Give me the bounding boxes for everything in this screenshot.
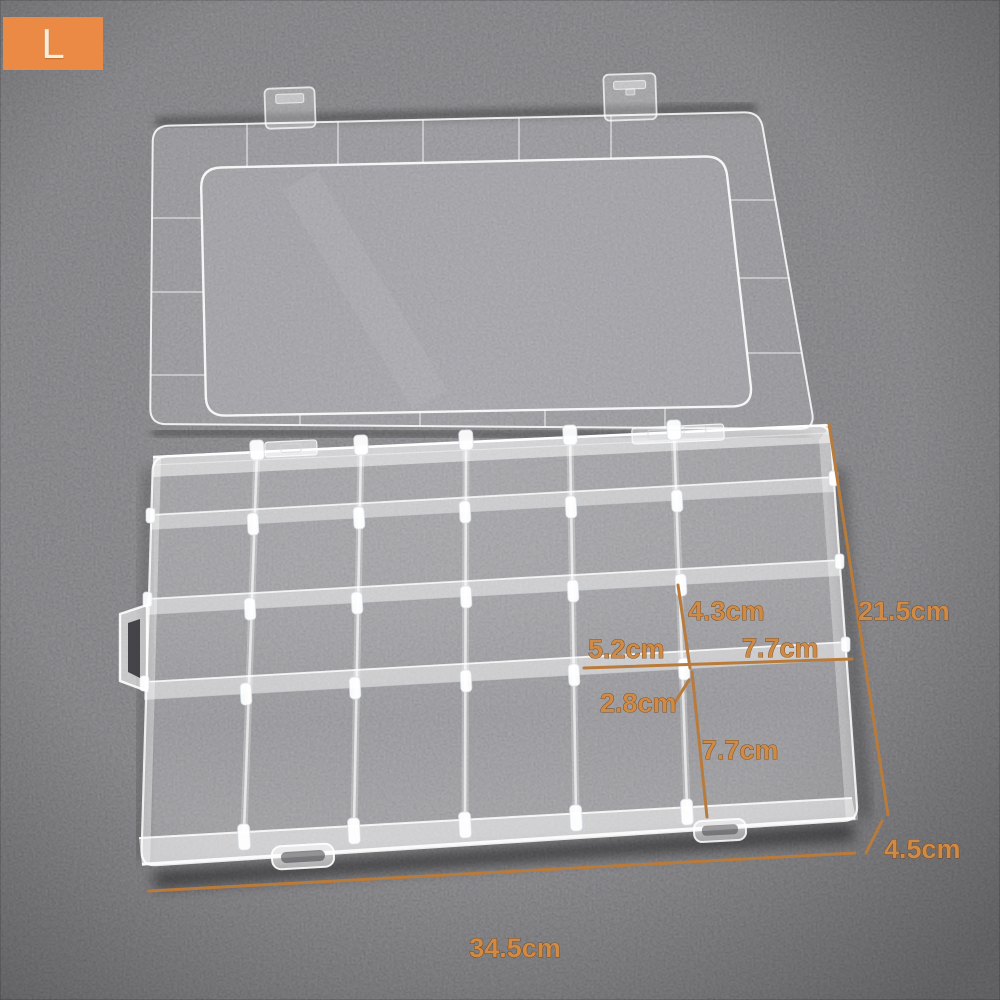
box-lid	[150, 73, 812, 429]
dimension-label-bottom-row: 7.7cm	[702, 735, 779, 765]
dimension-label-box-depth: 21.5cm	[858, 596, 950, 626]
lid-inner-panel	[201, 156, 751, 415]
product-photo: 4.3cm 21.5cm 5.2cm 7.7cm 2.8cm 7.7cm 4.5…	[0, 0, 1000, 1000]
dimension-label-box-width: 34.5cm	[469, 933, 561, 963]
front-latch-left	[271, 843, 334, 869]
hinge-notch	[626, 89, 635, 95]
side-clasp	[120, 605, 147, 691]
size-badge: L	[3, 17, 103, 70]
dimension-label-cell-width: 5.2cm	[588, 634, 665, 664]
hinge-slot	[613, 80, 645, 89]
rim-latch-left	[265, 440, 318, 457]
dimension-label-right-column: 7.7cm	[742, 633, 819, 663]
front-latch-right	[693, 819, 746, 843]
hinge-slot	[276, 94, 304, 104]
size-badge-label: L	[41, 23, 64, 65]
dimension-label-box-height: 4.5cm	[884, 834, 961, 864]
dimension-label-cell-height: 4.3cm	[688, 596, 765, 626]
dimension-label-divider: 2.8cm	[600, 688, 677, 718]
